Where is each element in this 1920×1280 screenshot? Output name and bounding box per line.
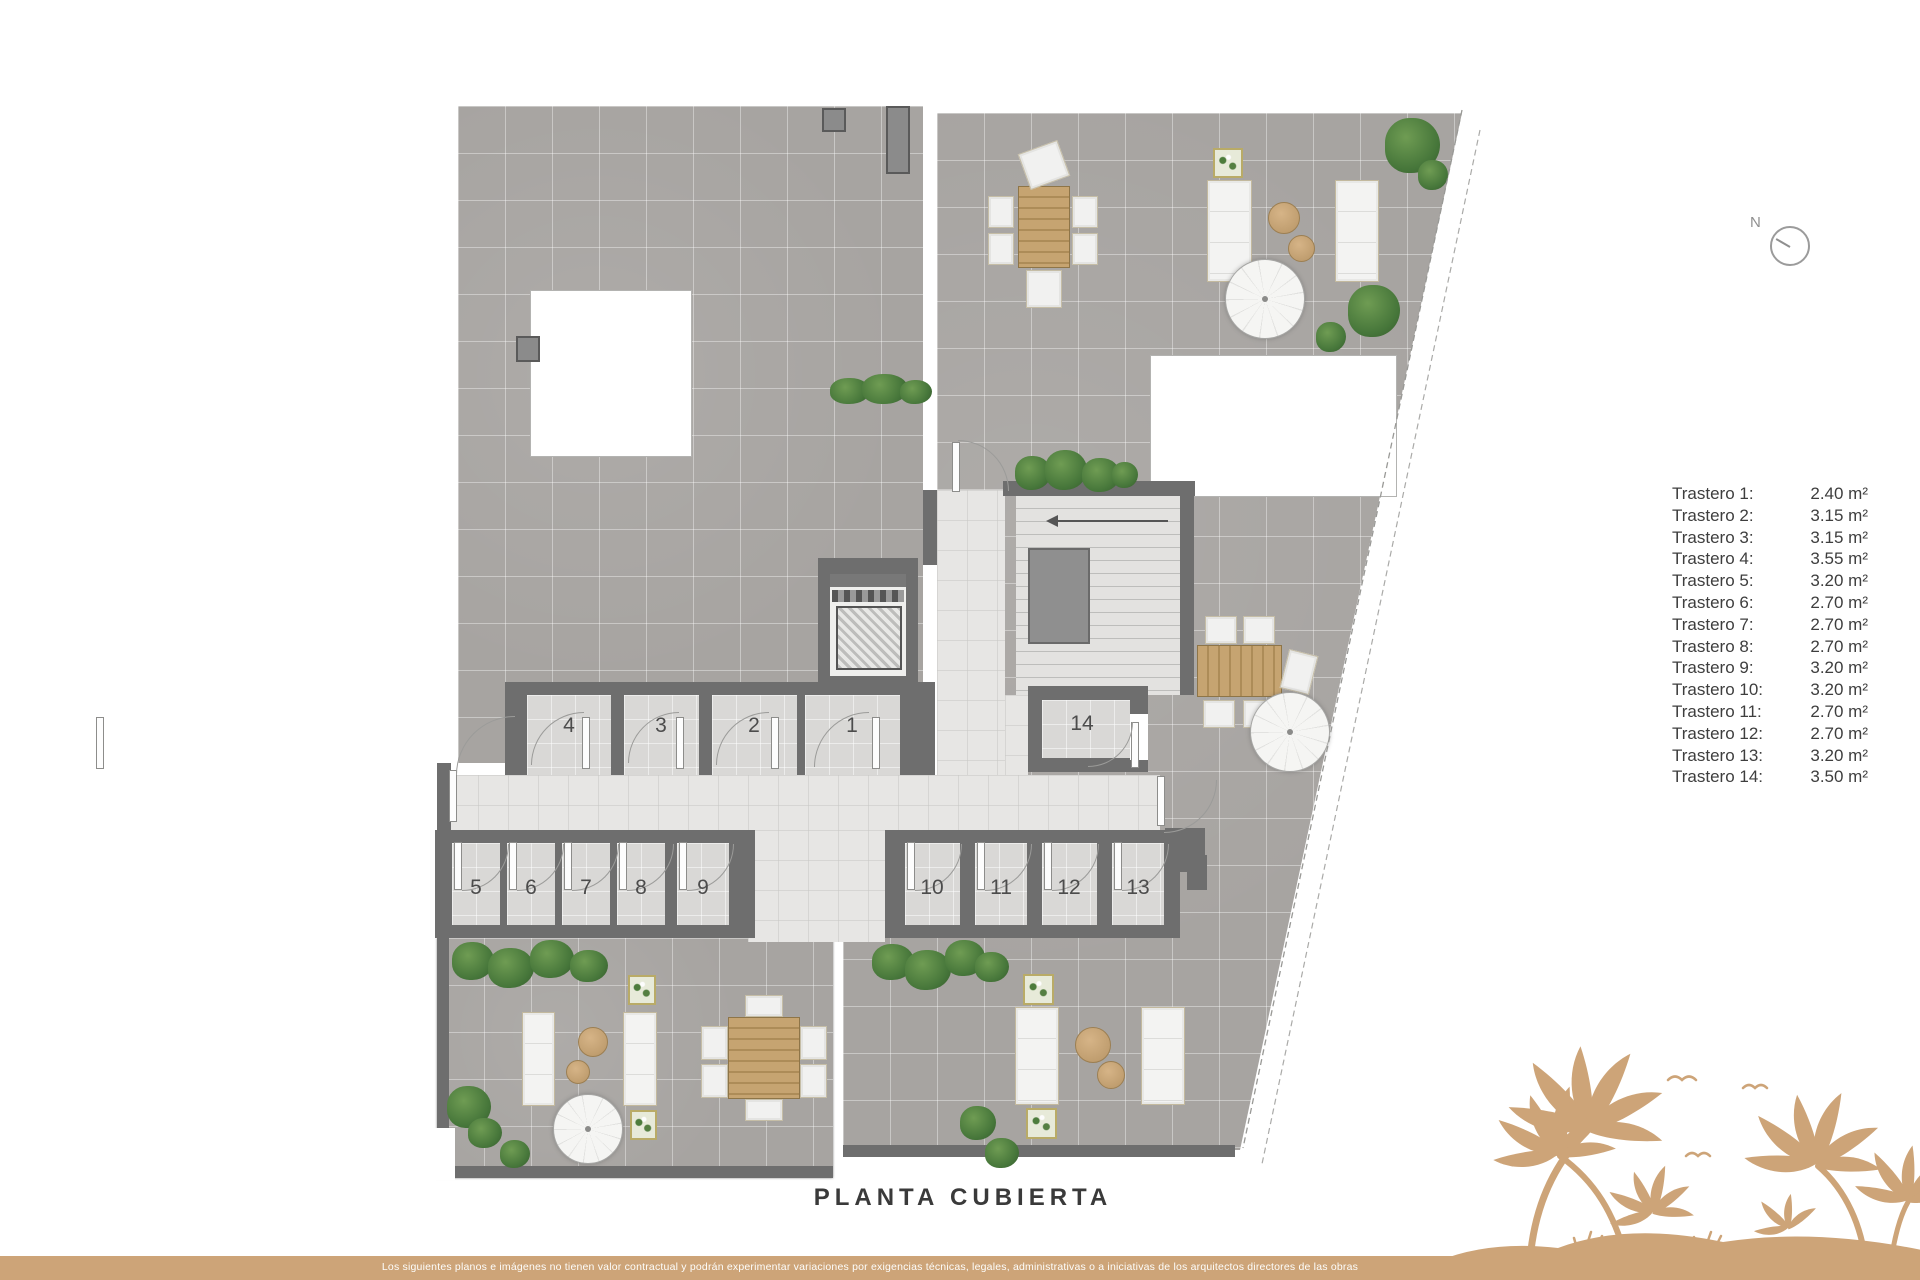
legend-item-area: 3.15 m²	[1810, 527, 1868, 549]
compass-needle	[1776, 238, 1791, 248]
legend-row: Trastero 8:2.70 m²	[1672, 636, 1868, 658]
legend-item-name: Trastero 7:	[1672, 614, 1754, 636]
legend-item-area: 2.70 m²	[1810, 592, 1868, 614]
legend-row: Trastero 7:2.70 m²	[1672, 614, 1868, 636]
floorplan-canvas: 1 2 3 4 5 6 7 8 9 10 11 12 13 14	[0, 0, 1920, 1280]
legend-row: Trastero 13:3.20 m²	[1672, 745, 1868, 767]
legend-item-name: Trastero 3:	[1672, 527, 1754, 549]
legend-row: Trastero 6:2.70 m²	[1672, 592, 1868, 614]
legend-row: Trastero 3:3.15 m²	[1672, 527, 1868, 549]
legend-item-area: 3.50 m²	[1810, 766, 1868, 788]
legend-item-area: 3.15 m²	[1810, 505, 1868, 527]
legend-item-area: 3.20 m²	[1810, 679, 1868, 701]
legend-item-name: Trastero 11:	[1672, 701, 1762, 723]
legend-item-area: 3.20 m²	[1810, 570, 1868, 592]
legend-item-area: 2.70 m²	[1810, 701, 1868, 723]
page-title: PLANTA CUBIERTA	[814, 1184, 1113, 1212]
legend-row: Trastero 9:3.20 m²	[1672, 657, 1868, 679]
legend-item-area: 2.70 m²	[1810, 614, 1868, 636]
legend-item-area: 3.20 m²	[1810, 657, 1868, 679]
legend-item-name: Trastero 6:	[1672, 592, 1754, 614]
legend-item-area: 2.70 m²	[1810, 723, 1868, 745]
legend-item-name: Trastero 1:	[1672, 483, 1754, 505]
legend-item-area: 2.40 m²	[1810, 483, 1868, 505]
legend-row: Trastero 11:2.70 m²	[1672, 701, 1868, 723]
legend-item-name: Trastero 8:	[1672, 636, 1754, 658]
legend-item-name: Trastero 13:	[1672, 745, 1763, 767]
legend-item-name: Trastero 5:	[1672, 570, 1754, 592]
legend-row: Trastero 12:2.70 m²	[1672, 723, 1868, 745]
legend-item-area: 2.70 m²	[1810, 636, 1868, 658]
legend-item-area: 3.55 m²	[1810, 548, 1868, 570]
legend-item-name: Trastero 9:	[1672, 657, 1754, 679]
legend-row: Trastero 5:3.20 m²	[1672, 570, 1868, 592]
legend-row: Trastero 10:3.20 m²	[1672, 679, 1868, 701]
legend-row: Trastero 14:3.50 m²	[1672, 766, 1868, 788]
legend-item-name: Trastero 4:	[1672, 548, 1754, 570]
legend-item-name: Trastero 12:	[1672, 723, 1763, 745]
legend-row: Trastero 4:3.55 m²	[1672, 548, 1868, 570]
legend-item-area: 3.20 m²	[1810, 745, 1868, 767]
legend-row: Trastero 2:3.15 m²	[1672, 505, 1868, 527]
north-label: N	[1750, 214, 1761, 231]
legend-item-name: Trastero 10:	[1672, 679, 1763, 701]
legend-row: Trastero 1:2.40 m²	[1672, 483, 1868, 505]
legend: Trastero 1:2.40 m² Trastero 2:3.15 m² Tr…	[1672, 483, 1868, 788]
legend-item-name: Trastero 14:	[1672, 766, 1763, 788]
compass-icon	[1770, 226, 1810, 266]
legend-item-name: Trastero 2:	[1672, 505, 1754, 527]
palm-decoration	[1438, 1016, 1920, 1280]
